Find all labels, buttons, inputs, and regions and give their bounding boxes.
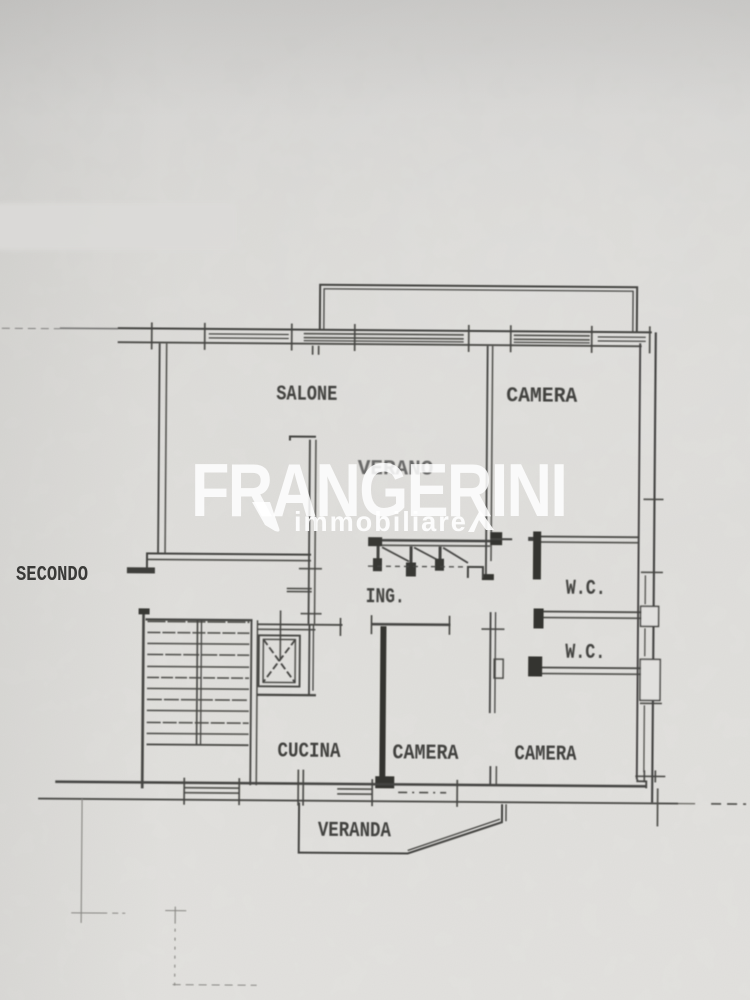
svg-text:CUCINA: CUCINA [277, 740, 340, 763]
svg-text:ING.: ING. [366, 586, 405, 609]
svg-text:CAMERA: CAMERA [506, 385, 578, 409]
svg-text:CAMERA: CAMERA [514, 743, 576, 766]
svg-text:VERANDA: VERANDA [318, 820, 392, 844]
svg-text:SECONDO: SECONDO [16, 564, 88, 587]
svg-text:W.C.: W.C. [566, 578, 606, 601]
svg-text:W.C.: W.C. [565, 642, 605, 665]
svg-text:SALONE: SALONE [276, 383, 337, 406]
svg-text:CAMERA: CAMERA [392, 742, 459, 766]
